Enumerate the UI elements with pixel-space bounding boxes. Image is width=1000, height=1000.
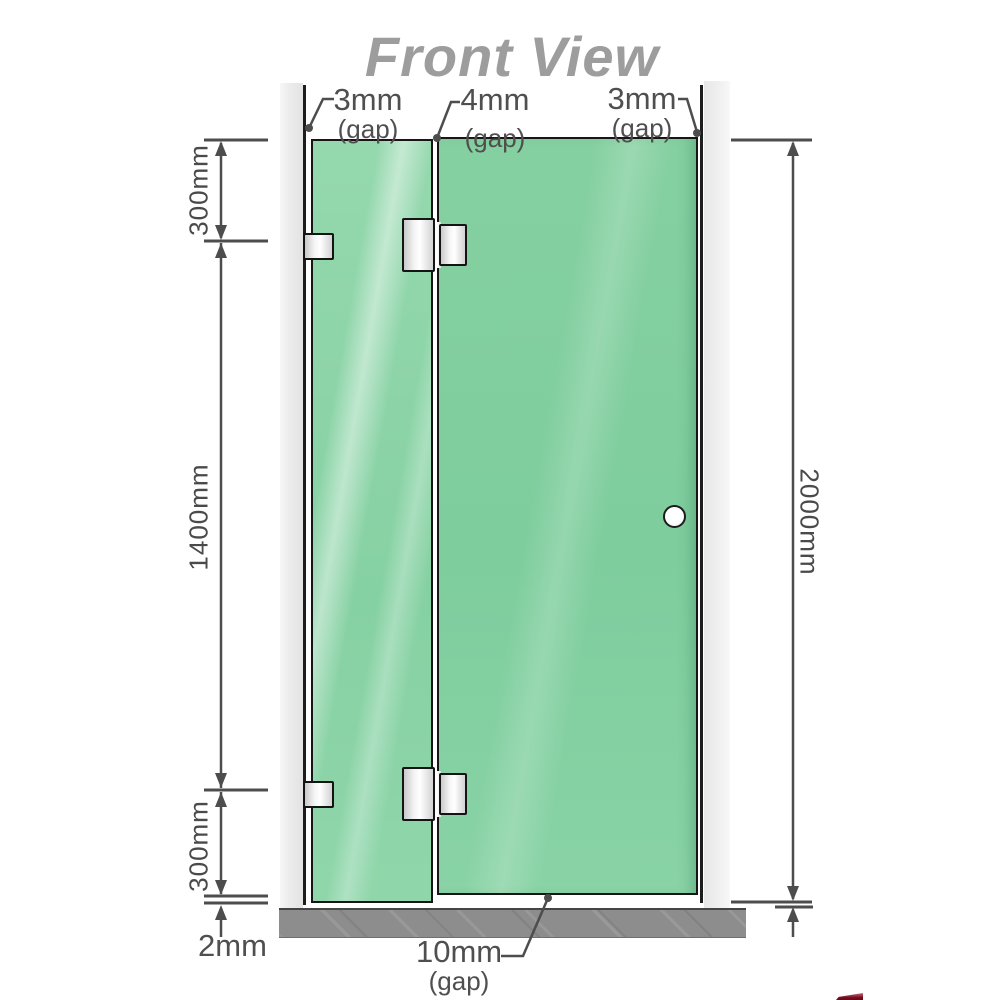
gap-label-right-value: 3mm bbox=[602, 83, 682, 114]
dim-label-2mm: 2mm bbox=[198, 928, 267, 964]
gap-label-right-unit: (gap) bbox=[602, 115, 682, 141]
gap-label-bottom-value: 10mm bbox=[416, 936, 502, 967]
wall-right-edge-line bbox=[700, 85, 703, 903]
dim-label-300-top: 300mm bbox=[184, 144, 215, 236]
dim-label-300-bottom: 300mm bbox=[184, 800, 215, 892]
dim-label-2000: 2000mm bbox=[794, 468, 825, 575]
wall-left bbox=[280, 83, 303, 908]
wall-bracket-top bbox=[303, 233, 334, 260]
gap-label-left: 3mm (gap) bbox=[328, 84, 408, 142]
hinge-bottom-left-plate bbox=[402, 767, 435, 821]
wall-right bbox=[704, 81, 730, 908]
dim-right-floor-gap bbox=[787, 907, 799, 937]
hinge-top-right-plate bbox=[439, 224, 467, 266]
floor-base-bar bbox=[279, 908, 746, 938]
gap-label-middle-value: 4mm bbox=[454, 84, 536, 115]
gap-label-bottom: 10mm (gap) bbox=[416, 936, 502, 994]
door-knob bbox=[663, 505, 686, 528]
gap-label-left-value: 3mm bbox=[328, 84, 408, 115]
dim-label-1400: 1400mm bbox=[184, 463, 215, 570]
hinge-bottom-right-plate bbox=[439, 773, 467, 815]
diagram-canvas: Front View bbox=[0, 0, 1000, 1000]
gap-label-middle-unit: (gap) bbox=[454, 125, 536, 151]
glass-panel-door bbox=[437, 137, 698, 895]
gap-label-bottom-unit: (gap) bbox=[416, 968, 502, 994]
gap-label-middle: 4mm (gap) bbox=[454, 84, 536, 151]
logo-fragment bbox=[836, 993, 863, 1000]
gap-label-right: 3mm (gap) bbox=[602, 83, 682, 141]
gap-label-left-unit: (gap) bbox=[328, 116, 408, 142]
page-title: Front View bbox=[365, 24, 659, 89]
wall-bracket-bottom bbox=[303, 781, 334, 808]
hinge-top-left-plate bbox=[402, 218, 435, 272]
